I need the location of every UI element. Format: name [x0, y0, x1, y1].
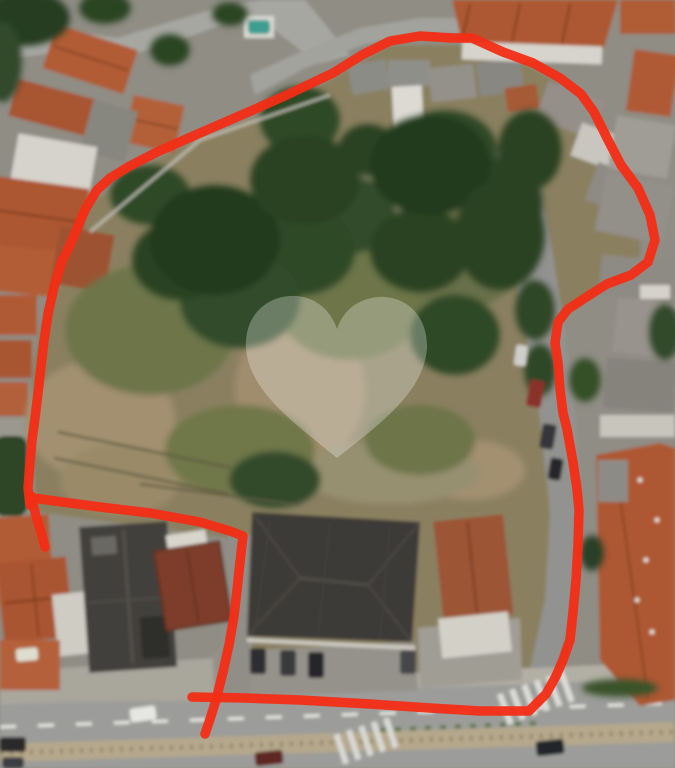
- left-hedge: [0, 436, 27, 516]
- dark-building-b: [247, 512, 420, 648]
- aerial-photo: [0, 0, 675, 768]
- brown-roof-building: [433, 514, 513, 621]
- aerial-photo-canvas: [0, 0, 675, 768]
- swimming-pool: [248, 20, 270, 34]
